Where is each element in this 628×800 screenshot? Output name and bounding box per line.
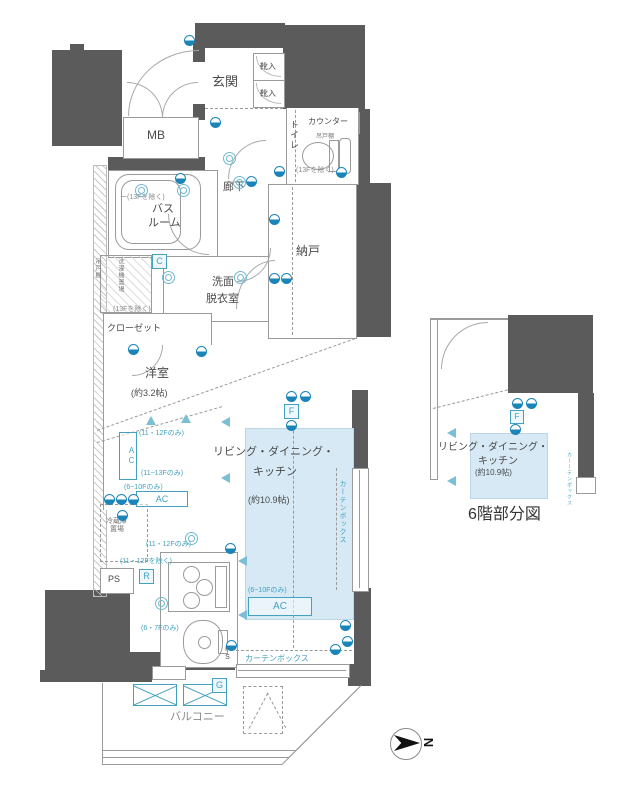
detail-wall-strip <box>578 393 594 478</box>
detail-window-sill <box>576 477 596 494</box>
note-6-10-only-b: (6~10Fのみ) <box>248 585 287 595</box>
label-toilet: トイレ <box>288 120 301 150</box>
label-curtainbox-h: カーテンボックス <box>245 653 309 664</box>
downlight-icon <box>238 610 247 620</box>
outlet-icon <box>196 346 207 357</box>
detail-top-wall <box>430 318 508 320</box>
label-ldk-size: (約10.9帖) <box>248 493 290 506</box>
symbol-r: R <box>139 569 154 584</box>
label-shoe-2: 靴入 <box>260 88 276 99</box>
balcony-bottom-line1 <box>102 750 296 751</box>
balcony-diag-line3 <box>282 686 360 764</box>
outlet-icon <box>300 391 311 402</box>
label-balcony: バルコニー <box>170 708 225 724</box>
downlight-icon <box>447 476 456 486</box>
outlet-icon <box>225 543 236 554</box>
label-bath-2: ルーム <box>148 214 181 230</box>
balcony-window-mullion <box>238 670 346 671</box>
detail-left-wall <box>430 318 438 480</box>
label-ps1: PS <box>108 574 120 584</box>
outlet-icon <box>342 636 353 647</box>
ceiling-light-icon <box>177 184 190 197</box>
wall-balcony-corner <box>348 664 370 686</box>
ceiling-light-icon <box>155 597 168 610</box>
nando-dash <box>292 187 293 335</box>
compass-north-label: N <box>421 738 436 747</box>
ldk-right-window-mullion <box>359 470 360 588</box>
ac-box-youshitsu: AC <box>136 491 188 507</box>
detail-curtainbox: カーーテンボックス <box>566 452 573 506</box>
outlet-icon <box>104 494 115 505</box>
detail-door-arc <box>441 322 488 369</box>
note-13f-closet: (13Fを除く) <box>113 304 151 314</box>
wall-right-block <box>355 183 391 337</box>
ceiling-light-icon <box>223 152 236 165</box>
detail-label-ldk-size: (約10.9帖) <box>475 467 512 478</box>
label-tsuridana-wall: 吊戸棚 <box>93 258 102 279</box>
label-washer: 洗濯機置場 <box>116 258 125 293</box>
downlight-icon <box>221 473 230 483</box>
label-genkan: 玄関 <box>212 71 238 90</box>
outlet-icon <box>116 494 127 505</box>
floor-plan-page: 玄関 靴入 靴入 MB カウンター トイレ 吊戸棚 廊下 バス ルーム 洗面 脱… <box>0 0 628 800</box>
ldk-right-window <box>352 468 369 592</box>
stove-grill <box>215 566 227 608</box>
wall-mb-under <box>108 157 205 171</box>
balcony-door-sill <box>152 666 186 680</box>
note-6-7-only: (6・7Fのみ) <box>141 623 179 633</box>
ceiling-light-icon <box>234 271 247 284</box>
ceiling-light-icon <box>185 532 198 545</box>
detail-label-ldk-2: キッチン <box>478 452 518 467</box>
outlet-icon <box>526 398 537 409</box>
room-nando <box>268 184 357 339</box>
note-11-12-except: (11・12Fを除く) <box>120 556 172 566</box>
detail-symbol-f: F <box>510 410 524 424</box>
wall-ldk-right-upper <box>352 390 368 470</box>
detail-wall-block <box>508 315 593 393</box>
stove-burner-2 <box>196 579 213 596</box>
note-11-12-only-a: (11・12Fのみ) <box>139 428 184 438</box>
label-ldk-1: リビング・ダイニング・ <box>213 443 334 459</box>
label-fridge-2: 置場 <box>110 524 124 534</box>
note-11-12-only-b: (11・12Fのみ) <box>146 539 191 549</box>
stove-burner-3 <box>183 592 200 609</box>
outlet-icon <box>274 166 285 177</box>
label-tsuridana-toilet: 吊戸棚 <box>316 131 334 140</box>
label-closet: クローゼット <box>107 321 161 334</box>
balcony-bottom-line3 <box>102 764 282 765</box>
outlet-icon <box>336 167 347 178</box>
detail-diag-dash <box>433 389 508 409</box>
note-11-13-only: (11~13Fのみ) <box>141 468 183 478</box>
symbol-f: F <box>284 404 299 419</box>
tripod-light-icon <box>146 416 156 425</box>
outlet-icon <box>246 176 257 187</box>
outlet-icon <box>128 494 139 505</box>
label-senmen-2: 脱衣室 <box>206 290 239 306</box>
tripod-light-icon <box>181 414 191 423</box>
detail-label-ldk-1: リビング・ダイニング・ <box>438 438 548 453</box>
downlight-icon <box>221 417 230 427</box>
label-nando: 納戸 <box>296 242 320 259</box>
balcony-bottom-line2 <box>102 757 289 758</box>
label-counter: カウンター <box>308 116 348 127</box>
label-mb: MB <box>147 128 165 142</box>
outlet-icon <box>340 620 351 631</box>
symbol-g: G <box>212 678 227 693</box>
downlight-icon <box>238 556 247 566</box>
label-youshitsu: 洋室 <box>145 364 169 381</box>
outlet-icon <box>128 344 139 355</box>
label-ldk-2: キッチン <box>253 463 297 479</box>
ac-box-vertical: AC <box>119 432 137 480</box>
wall-topright-block <box>283 25 365 109</box>
balcony-window <box>236 664 350 678</box>
ceiling-light-icon <box>135 184 148 197</box>
downlight-icon <box>447 428 456 438</box>
label-shoe-1: 靴入 <box>260 61 276 72</box>
wall-bottomleft-strip <box>40 670 152 682</box>
sink-faucet <box>198 636 211 649</box>
label-youshitsu-size: (約3.2帖) <box>131 386 168 399</box>
outlet-icon <box>117 510 128 521</box>
outlet-icon <box>184 35 195 46</box>
ceiling-light-icon <box>162 271 175 284</box>
outlet-icon <box>512 398 523 409</box>
outlet-icon <box>175 173 186 184</box>
outlet-icon <box>330 644 341 655</box>
outlet-icon <box>281 273 292 284</box>
symbol-c: C <box>152 254 167 269</box>
stove-burner-1 <box>183 566 200 583</box>
ac-box-ldk: AC <box>248 597 312 616</box>
wall-top-bar <box>195 23 285 50</box>
note-13f-toilet: (13Fを除く) <box>296 165 334 175</box>
outlet-icon <box>286 391 297 402</box>
detail-title: 6階部分図 <box>468 500 541 524</box>
outlet-icon <box>269 273 280 284</box>
genkan-step-line <box>205 108 283 109</box>
ceiling-light-icon <box>233 176 246 189</box>
balcony-hatch-box-1 <box>133 684 177 706</box>
outlet-icon <box>226 640 237 651</box>
outlet-icon <box>510 424 521 435</box>
label-senmen-1: 洗面 <box>212 273 234 289</box>
balcony-left-line <box>102 683 103 765</box>
label-curtainbox-v: カーテンボックス <box>337 480 347 544</box>
wall-bottomleft-block <box>45 590 130 672</box>
outlet-icon <box>269 214 280 225</box>
outlet-icon <box>286 420 297 431</box>
outlet-icon <box>210 117 221 128</box>
wall-topleft-block <box>52 50 122 146</box>
